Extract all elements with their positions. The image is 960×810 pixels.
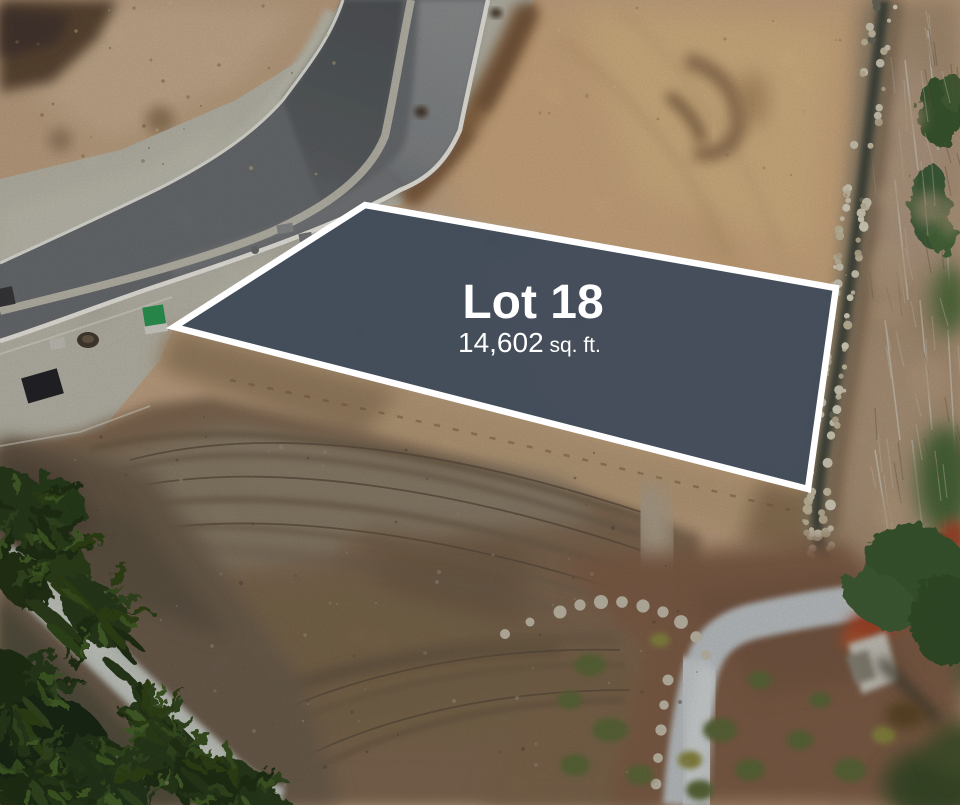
svg-text:Lot 18: Lot 18 [462, 276, 603, 329]
